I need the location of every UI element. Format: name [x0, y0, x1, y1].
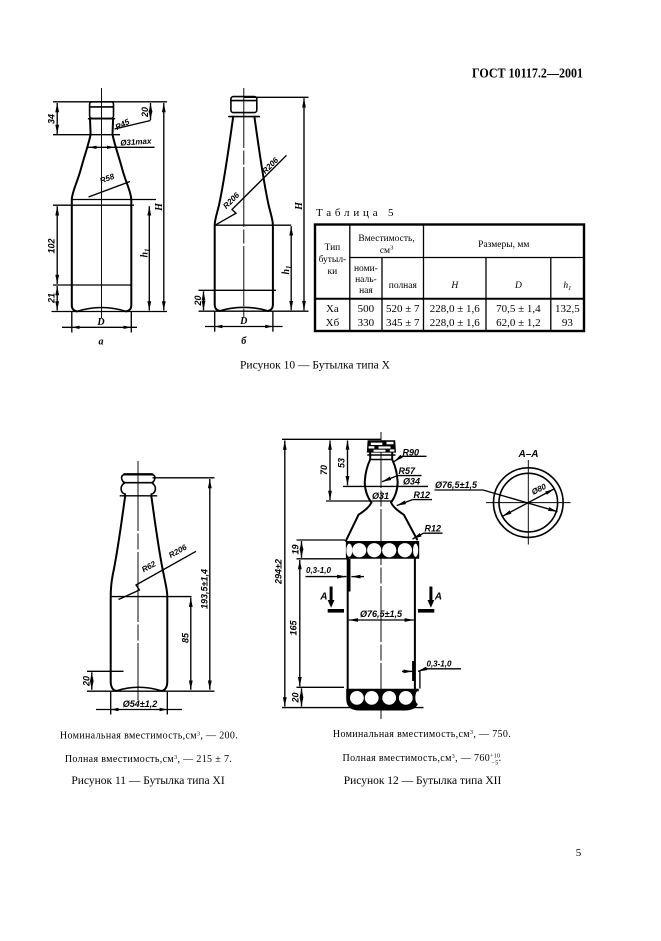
- svg-text:Хб: Хб: [326, 317, 340, 329]
- svg-text:193,5±1,4: 193,5±1,4: [200, 569, 210, 609]
- svg-text:Таблица 5: Таблица 5: [316, 207, 397, 219]
- svg-text:D: D: [239, 316, 247, 327]
- svg-text:70,5 ± 1,4: 70,5 ± 1,4: [496, 303, 541, 315]
- svg-text:20: 20: [82, 676, 92, 687]
- svg-text:70: 70: [319, 465, 329, 475]
- svg-text:345 ± 7: 345 ± 7: [386, 317, 420, 329]
- svg-text:Ø54±1,2: Ø54±1,2: [123, 699, 157, 709]
- svg-text:Ø76,5±1,5: Ø76,5±1,5: [360, 609, 403, 619]
- svg-text:0,3-1,0: 0,3-1,0: [306, 566, 331, 575]
- svg-text:228,0 ± 1,6: 228,0 ± 1,6: [430, 317, 481, 329]
- svg-text:20: 20: [291, 692, 301, 703]
- svg-text:Номинальная вместимость,см3, —: Номинальная вместимость,см3, — 200.: [60, 730, 238, 741]
- svg-text:Ø31: Ø31: [372, 491, 389, 501]
- svg-text:34: 34: [47, 114, 57, 124]
- svg-text:5: 5: [576, 847, 582, 859]
- svg-text:20: 20: [140, 107, 150, 118]
- svg-text:62,0 ± 1,2: 62,0 ± 1,2: [496, 317, 541, 329]
- svg-text:H: H: [154, 202, 165, 212]
- svg-text:228,0 ± 1,6: 228,0 ± 1,6: [430, 303, 481, 315]
- svg-text:520 ± 7: 520 ± 7: [386, 303, 420, 315]
- svg-text:330: 330: [358, 317, 375, 329]
- svg-text:ная: ная: [359, 286, 373, 296]
- svg-text:Вместимость,: Вместимость,: [358, 234, 414, 244]
- svg-text:H: H: [294, 201, 305, 211]
- svg-text:102: 102: [47, 238, 57, 253]
- svg-text:D: D: [514, 281, 522, 291]
- svg-text:132,5: 132,5: [555, 303, 580, 315]
- svg-text:500: 500: [358, 303, 375, 315]
- svg-text:наль-: наль-: [355, 275, 377, 285]
- svg-text:165: 165: [289, 620, 299, 636]
- svg-text:85: 85: [181, 632, 191, 643]
- svg-text:20: 20: [193, 295, 203, 306]
- svg-text:а: а: [99, 337, 104, 348]
- svg-text:Тип: Тип: [325, 243, 341, 253]
- svg-text:A–A: A–A: [517, 449, 538, 460]
- svg-text:бутыл-: бутыл-: [319, 254, 347, 265]
- svg-text:R12: R12: [414, 490, 431, 500]
- svg-text:93: 93: [562, 317, 574, 329]
- svg-text:D: D: [96, 317, 104, 328]
- svg-text:0,3-1,0: 0,3-1,0: [427, 660, 452, 669]
- svg-text:ки: ки: [328, 267, 338, 277]
- svg-text:Размеры, мм: Размеры, мм: [478, 240, 529, 250]
- svg-text:A: A: [434, 592, 442, 603]
- svg-text:R12: R12: [425, 523, 442, 533]
- svg-text:Рисунок 12 — Бутылка типа XII: Рисунок 12 — Бутылка типа XII: [344, 775, 502, 787]
- svg-text:Рисунок 10 — Бутылка типа X: Рисунок 10 — Бутылка типа X: [240, 360, 391, 372]
- svg-text:номи-: номи-: [354, 264, 378, 274]
- svg-text:21: 21: [47, 293, 57, 304]
- svg-text:294±2: 294±2: [274, 559, 284, 585]
- svg-text:H: H: [450, 281, 459, 291]
- svg-text:53: 53: [337, 458, 347, 468]
- svg-text:19: 19: [291, 544, 301, 554]
- svg-text:Ø34: Ø34: [403, 476, 420, 486]
- svg-text:A: A: [319, 592, 327, 603]
- svg-text:ГОСТ 10117.2—2001: ГОСТ 10117.2—2001: [472, 67, 583, 82]
- svg-text:Рисунок 11 — Бутылка типа XI: Рисунок 11 — Бутылка типа XI: [71, 775, 225, 787]
- svg-text:Номинальная вместимость,см3, —: Номинальная вместимость,см3, — 750.: [333, 729, 511, 740]
- svg-text:Полная вместимость,см3, — 215: Полная вместимость,см3, — 215 ± 7.: [65, 754, 232, 765]
- svg-text:Ха: Ха: [326, 303, 339, 315]
- svg-text:R57: R57: [399, 466, 417, 476]
- svg-text:полная: полная: [389, 281, 418, 291]
- svg-text:Ø76,5±1,5: Ø76,5±1,5: [435, 480, 478, 490]
